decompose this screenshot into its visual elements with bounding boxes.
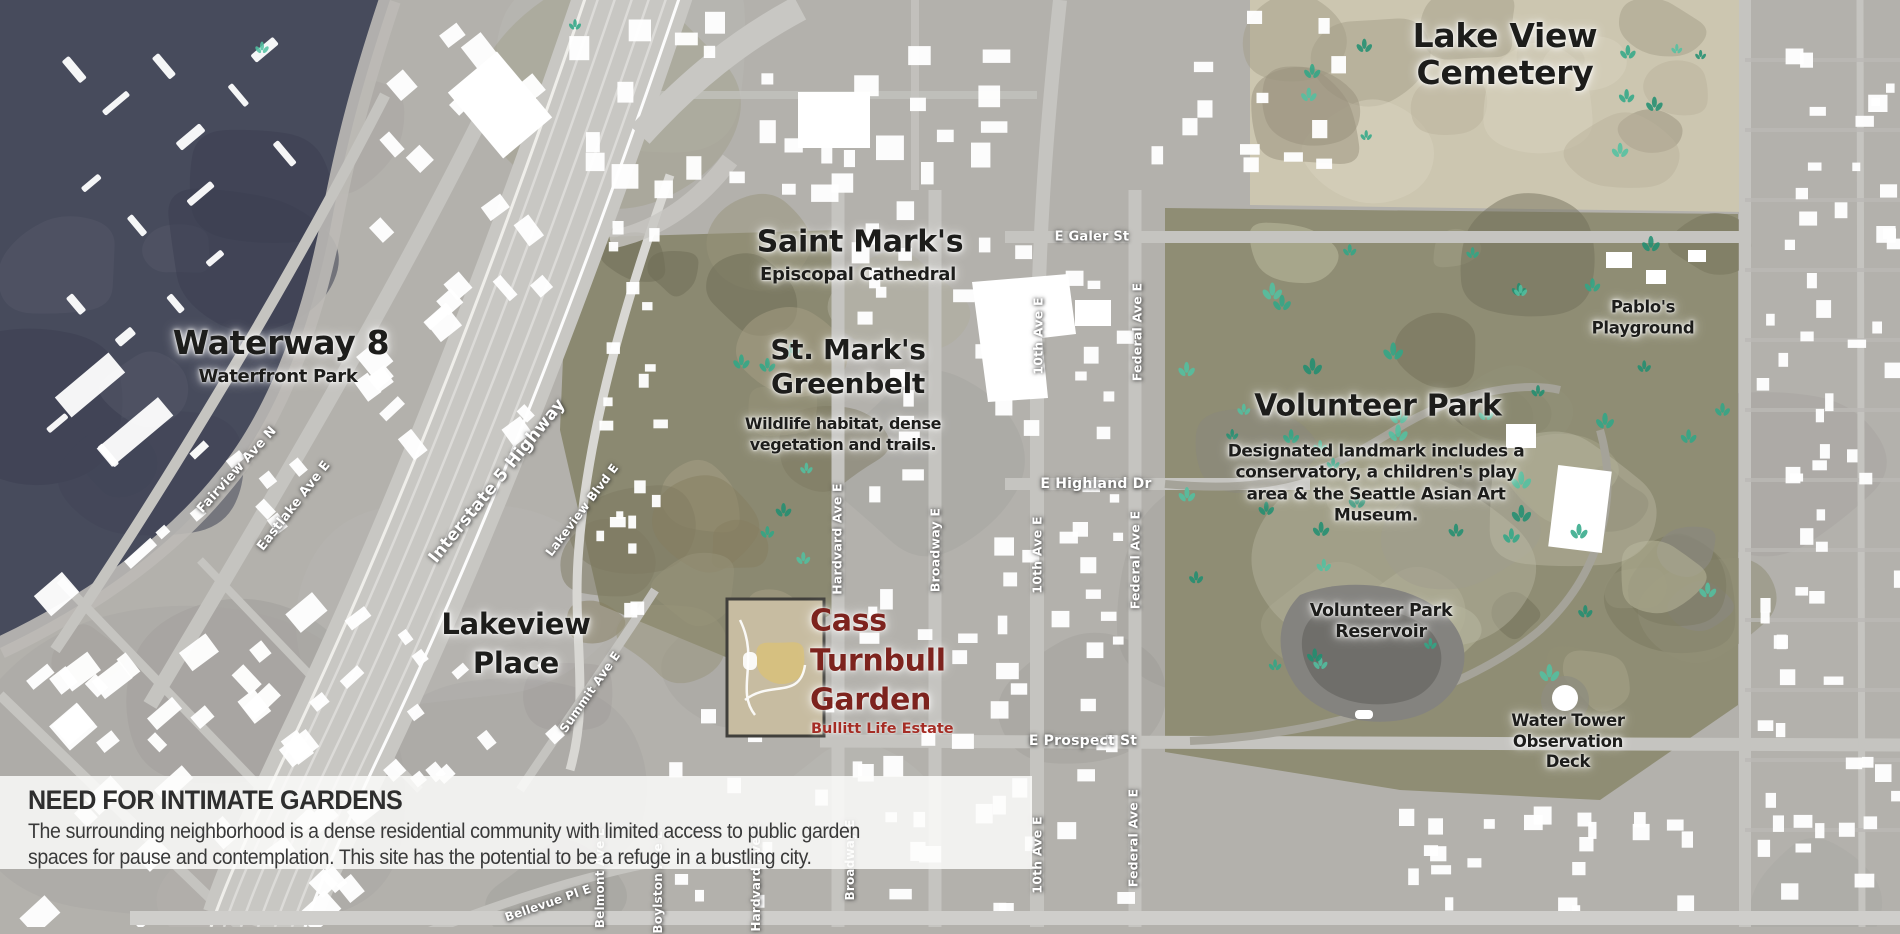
- water-tower: [1541, 676, 1589, 724]
- volunteer-park-region: [1165, 193, 1777, 800]
- cass-turnbull-garden-site: [727, 599, 824, 736]
- need-for-intimate-gardens-panel: NEED FOR INTIMATE GARDENS The surroundin…: [0, 776, 1032, 869]
- panel-title: NEED FOR INTIMATE GARDENS: [28, 785, 962, 816]
- panel-body-line-1: The surrounding neighborhood is a dense …: [28, 819, 962, 845]
- cemetery-region: [1243, 0, 1745, 212]
- aerial-map: Lake ViewCemeteryWaterway 8Waterfront Pa…: [0, 0, 1900, 927]
- panel-body-line-2: spaces for pause and contemplation. This…: [28, 845, 962, 871]
